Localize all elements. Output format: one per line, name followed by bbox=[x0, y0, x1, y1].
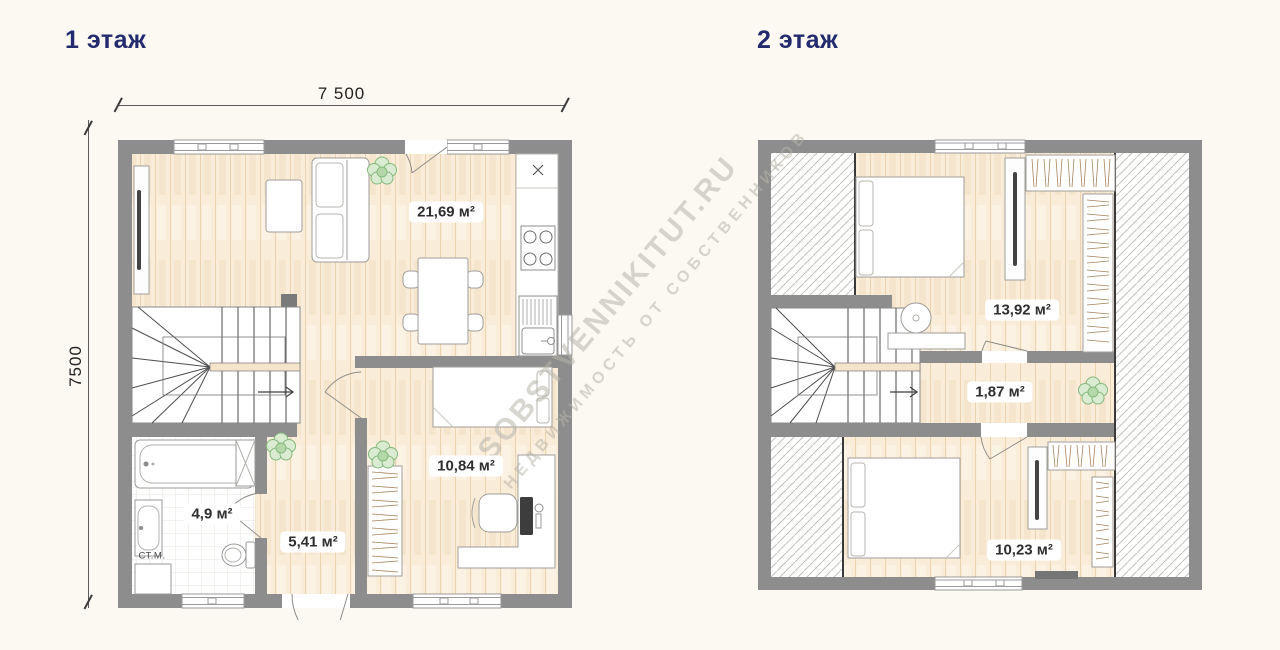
bed-icon bbox=[433, 367, 552, 427]
tv-icon bbox=[134, 166, 149, 294]
wardrobe-icon bbox=[368, 466, 402, 576]
dimension-height-label: 7500 bbox=[66, 345, 86, 387]
bath-sink-icon bbox=[135, 500, 162, 556]
pouf-icon bbox=[901, 303, 931, 333]
attic-area bbox=[771, 153, 855, 295]
tv-icon bbox=[1005, 158, 1025, 280]
floor1-plan bbox=[110, 130, 590, 620]
washing-machine-icon bbox=[135, 564, 171, 594]
stairs-icon bbox=[771, 308, 920, 423]
chair-icon bbox=[403, 271, 420, 288]
dimension-height-line bbox=[88, 120, 89, 608]
wardrobe-icon bbox=[1092, 477, 1113, 567]
area-label-bedroom-bottom: 10,23 м² bbox=[987, 540, 1061, 561]
floor2-plan bbox=[750, 130, 1215, 605]
attic-area bbox=[771, 437, 843, 577]
dimension-width-label: 7 500 bbox=[118, 84, 565, 104]
bed-icon bbox=[848, 458, 960, 558]
bed-icon bbox=[856, 177, 964, 277]
chair-icon bbox=[466, 314, 483, 331]
kitchen-sink-icon bbox=[519, 296, 557, 356]
sofa-icon bbox=[312, 158, 369, 262]
wardrobe-icon bbox=[1048, 442, 1115, 470]
area-label-living-kitchen: 21,69 м² bbox=[409, 202, 483, 223]
chair-icon bbox=[403, 314, 420, 331]
tv-icon bbox=[1028, 447, 1047, 529]
dimension-width-line bbox=[118, 105, 565, 106]
stove-icon bbox=[521, 226, 555, 270]
window-icon bbox=[182, 594, 244, 608]
area-label-bathroom: 4,9 м² bbox=[183, 504, 240, 525]
window-icon bbox=[558, 315, 572, 355]
window-sill bbox=[1035, 571, 1078, 579]
window-icon bbox=[174, 140, 264, 154]
area-label-hall-f2: 1,87 м² bbox=[967, 382, 1032, 403]
wardrobe-icon bbox=[1026, 155, 1115, 191]
floor1-title: 1 этаж bbox=[65, 26, 146, 55]
wardrobe-icon bbox=[1083, 194, 1113, 352]
attic-area bbox=[1115, 153, 1189, 577]
door-icon bbox=[282, 594, 350, 620]
window-icon bbox=[935, 140, 1025, 153]
area-label-bedroom-f1: 10,84 м² bbox=[429, 456, 503, 477]
chair-icon bbox=[466, 271, 483, 288]
cabinet-icon bbox=[236, 440, 255, 486]
window-icon bbox=[413, 594, 501, 608]
area-label-bedroom-top: 13,92 м² bbox=[985, 300, 1059, 321]
area-label-hallway: 5,41 м² bbox=[280, 532, 345, 553]
stairs-icon bbox=[132, 307, 300, 423]
coffee-table-icon bbox=[266, 180, 302, 232]
toilet-icon bbox=[222, 542, 255, 568]
floor2-title: 2 этаж bbox=[757, 26, 838, 55]
floorplan-page: 1 этаж 2 этаж 7 500 7500 bbox=[0, 0, 1280, 650]
washer-label: СТ.М. bbox=[139, 551, 166, 562]
window-icon bbox=[447, 140, 509, 154]
bench-icon bbox=[888, 333, 965, 349]
bathtub-icon bbox=[135, 440, 253, 488]
window-icon bbox=[935, 577, 1022, 590]
